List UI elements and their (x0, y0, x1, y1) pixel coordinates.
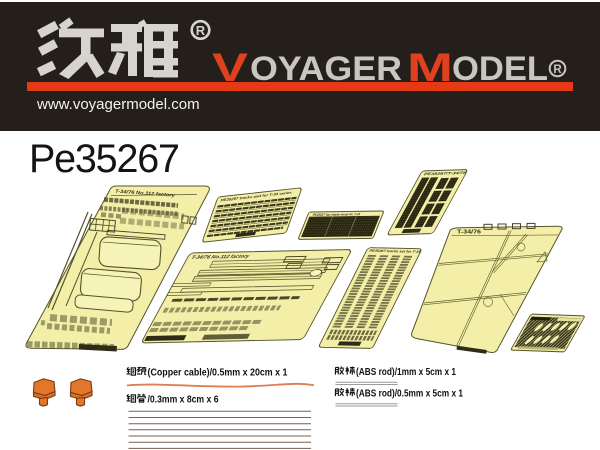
svg-text:(ABS rod)/0.5mm x 5cm x 1: (ABS rod)/0.5mm x 5cm x 1 (356, 388, 463, 399)
svg-text:www.voyagermodel.com: www.voyagermodel.com (36, 96, 200, 113)
svg-text:R: R (196, 23, 206, 38)
svg-text:R: R (553, 64, 562, 76)
svg-text:/0.3mm x 8cm x 6: /0.3mm x 8cm x 6 (148, 394, 219, 405)
svg-text:(Copper cable)/0.5mm x 20cm x: (Copper cable)/0.5mm x 20cm x 1 (148, 367, 288, 378)
svg-text:T-34/76: T-34/76 (457, 230, 481, 236)
svg-text:(ABS rod)/1mm x 5cm x 1: (ABS rod)/1mm x 5cm x 1 (356, 367, 456, 378)
